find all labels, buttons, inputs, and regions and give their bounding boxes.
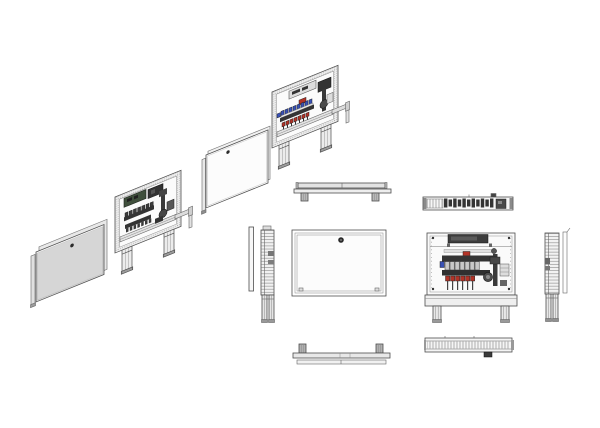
actuator-row <box>445 262 479 271</box>
door-edge-profile <box>249 227 254 291</box>
door-frame-rail <box>31 254 35 306</box>
manifold-beam-top <box>442 256 495 262</box>
manifold-beam-bottom <box>442 270 490 276</box>
assembly-drawing <box>0 0 600 428</box>
pump-valve-red <box>463 252 470 257</box>
ortho-closed-front-view <box>292 230 386 296</box>
screw-icon <box>432 288 434 290</box>
bottom-sill <box>425 295 517 306</box>
drain-fitting <box>484 352 492 357</box>
screw-icon <box>432 237 434 239</box>
drawing-canvas <box>0 0 600 428</box>
blue-end-cap <box>440 262 444 268</box>
screw-icon <box>508 237 510 239</box>
manifold-from-above <box>444 199 493 208</box>
back-panel-profile <box>563 232 567 293</box>
screw-icon <box>508 288 510 290</box>
door-panel-front <box>297 235 381 291</box>
door-frame-rail <box>202 158 206 212</box>
